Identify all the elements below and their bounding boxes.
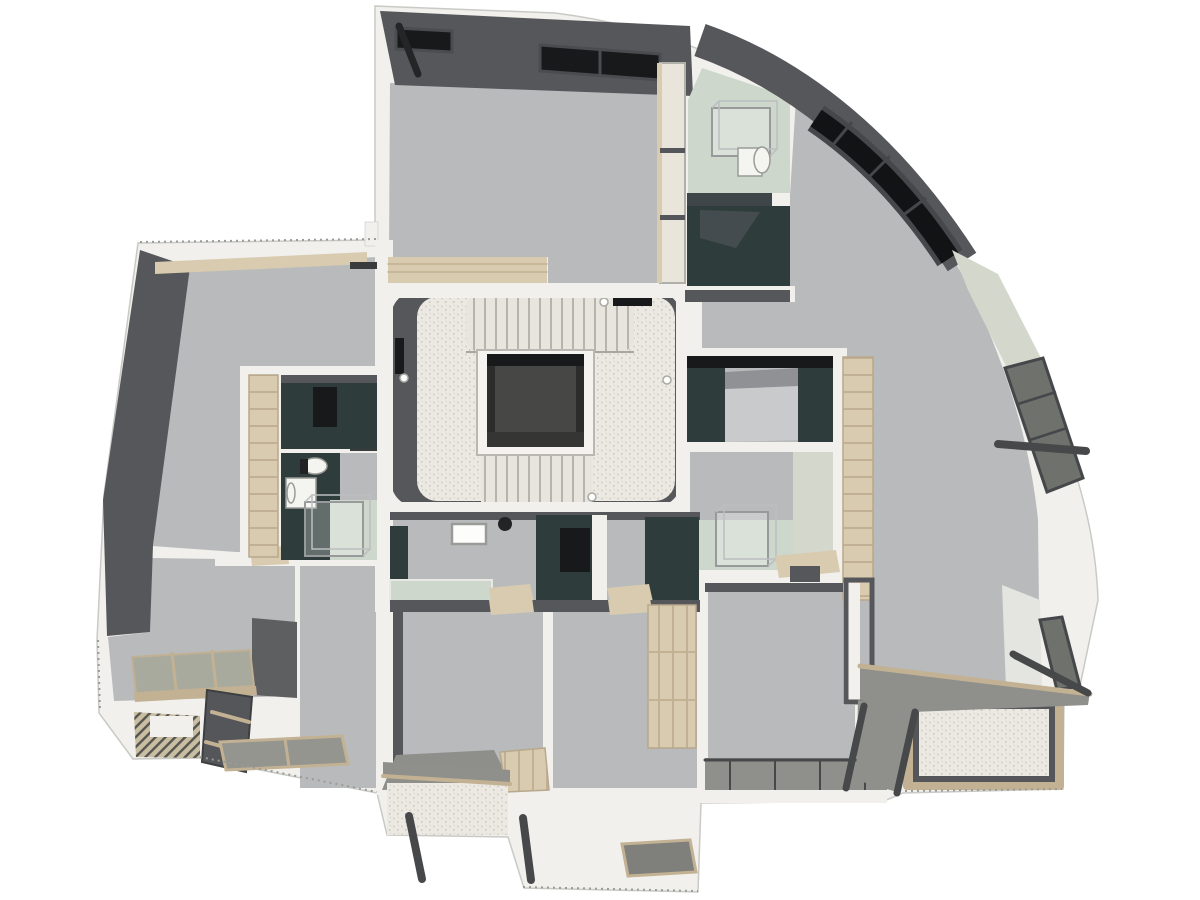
- closet-cabinet: [313, 387, 337, 427]
- wardrobe-east: [843, 357, 873, 600]
- mirror-west: [287, 483, 295, 503]
- stair-core: [391, 291, 681, 507]
- glass-shower-west: [305, 502, 363, 556]
- bathroom-west: [281, 453, 377, 560]
- lower-wall-speckled: [1002, 585, 1042, 693]
- wood-threshold-north: [388, 257, 547, 283]
- wall-bath-east-north: [683, 442, 835, 453]
- balcony-speckled-deck: [387, 783, 508, 835]
- wall-shelf: [350, 262, 377, 269]
- wardrobe-strip-west: [249, 375, 278, 557]
- bedroom-se-wall-face: [705, 583, 853, 592]
- door-stop-dot: [663, 376, 671, 384]
- wall-face-below-kitchenette: [685, 290, 790, 302]
- sw-wall-face: [252, 618, 297, 698]
- balcony-parapet: [700, 790, 887, 803]
- dark-threshold-east: [790, 566, 820, 582]
- laundry-counter: [390, 580, 492, 602]
- wardrobe-edge: [657, 63, 662, 283]
- mirror-ne: [754, 147, 770, 173]
- floor-plan-screenshot: [0, 0, 1200, 900]
- wardrobe-north: [657, 63, 685, 283]
- hall-cabinet-insert: [560, 528, 590, 572]
- headboard-wall-left: [687, 362, 725, 442]
- floor-plan-rendering: [0, 0, 1200, 900]
- core-door-leaf-west: [395, 338, 404, 374]
- wardrobe-south-right: [648, 605, 696, 748]
- elevator-door-track: [487, 354, 584, 366]
- counter-edge-ne: [687, 193, 772, 206]
- toilet-tank: [300, 459, 308, 474]
- wall-core-north: [383, 283, 700, 298]
- bedroom-north-floor: [389, 83, 678, 283]
- door-stop-dot: [600, 298, 608, 306]
- elevator-jamb-right: [576, 366, 584, 432]
- basin: [498, 517, 512, 531]
- pergola-opening: [150, 716, 193, 737]
- wood-threshold-br: [608, 597, 652, 615]
- terrace-speckled-deck: [916, 706, 1052, 779]
- wardrobe-divider: [660, 215, 685, 220]
- hall-wall-gap: [592, 515, 607, 605]
- headboard-wall-right: [798, 362, 833, 442]
- elevator: [477, 350, 594, 455]
- stairs-lower-flight: [481, 452, 592, 506]
- elevator-jamb-left: [487, 366, 495, 432]
- stairs-upper-flight: [466, 294, 634, 352]
- slatted-bench: [132, 650, 254, 693]
- bathroom-west-floor: [340, 453, 377, 500]
- wardrobe-divider: [660, 148, 685, 153]
- wardrobe-doors: [660, 63, 685, 283]
- whiteboard: [452, 524, 486, 544]
- walk-in-closet-west: [281, 375, 377, 449]
- door-stop-dot: [400, 374, 408, 382]
- hall-cabinet-right: [645, 517, 699, 607]
- wood-threshold-bl: [489, 597, 534, 615]
- door-stop-dot: [588, 493, 596, 501]
- bathroom-northeast: [687, 68, 790, 286]
- alcove-top-strip: [687, 356, 833, 368]
- elevator-cab-shadow: [487, 432, 584, 447]
- skylight-mat: [622, 840, 696, 876]
